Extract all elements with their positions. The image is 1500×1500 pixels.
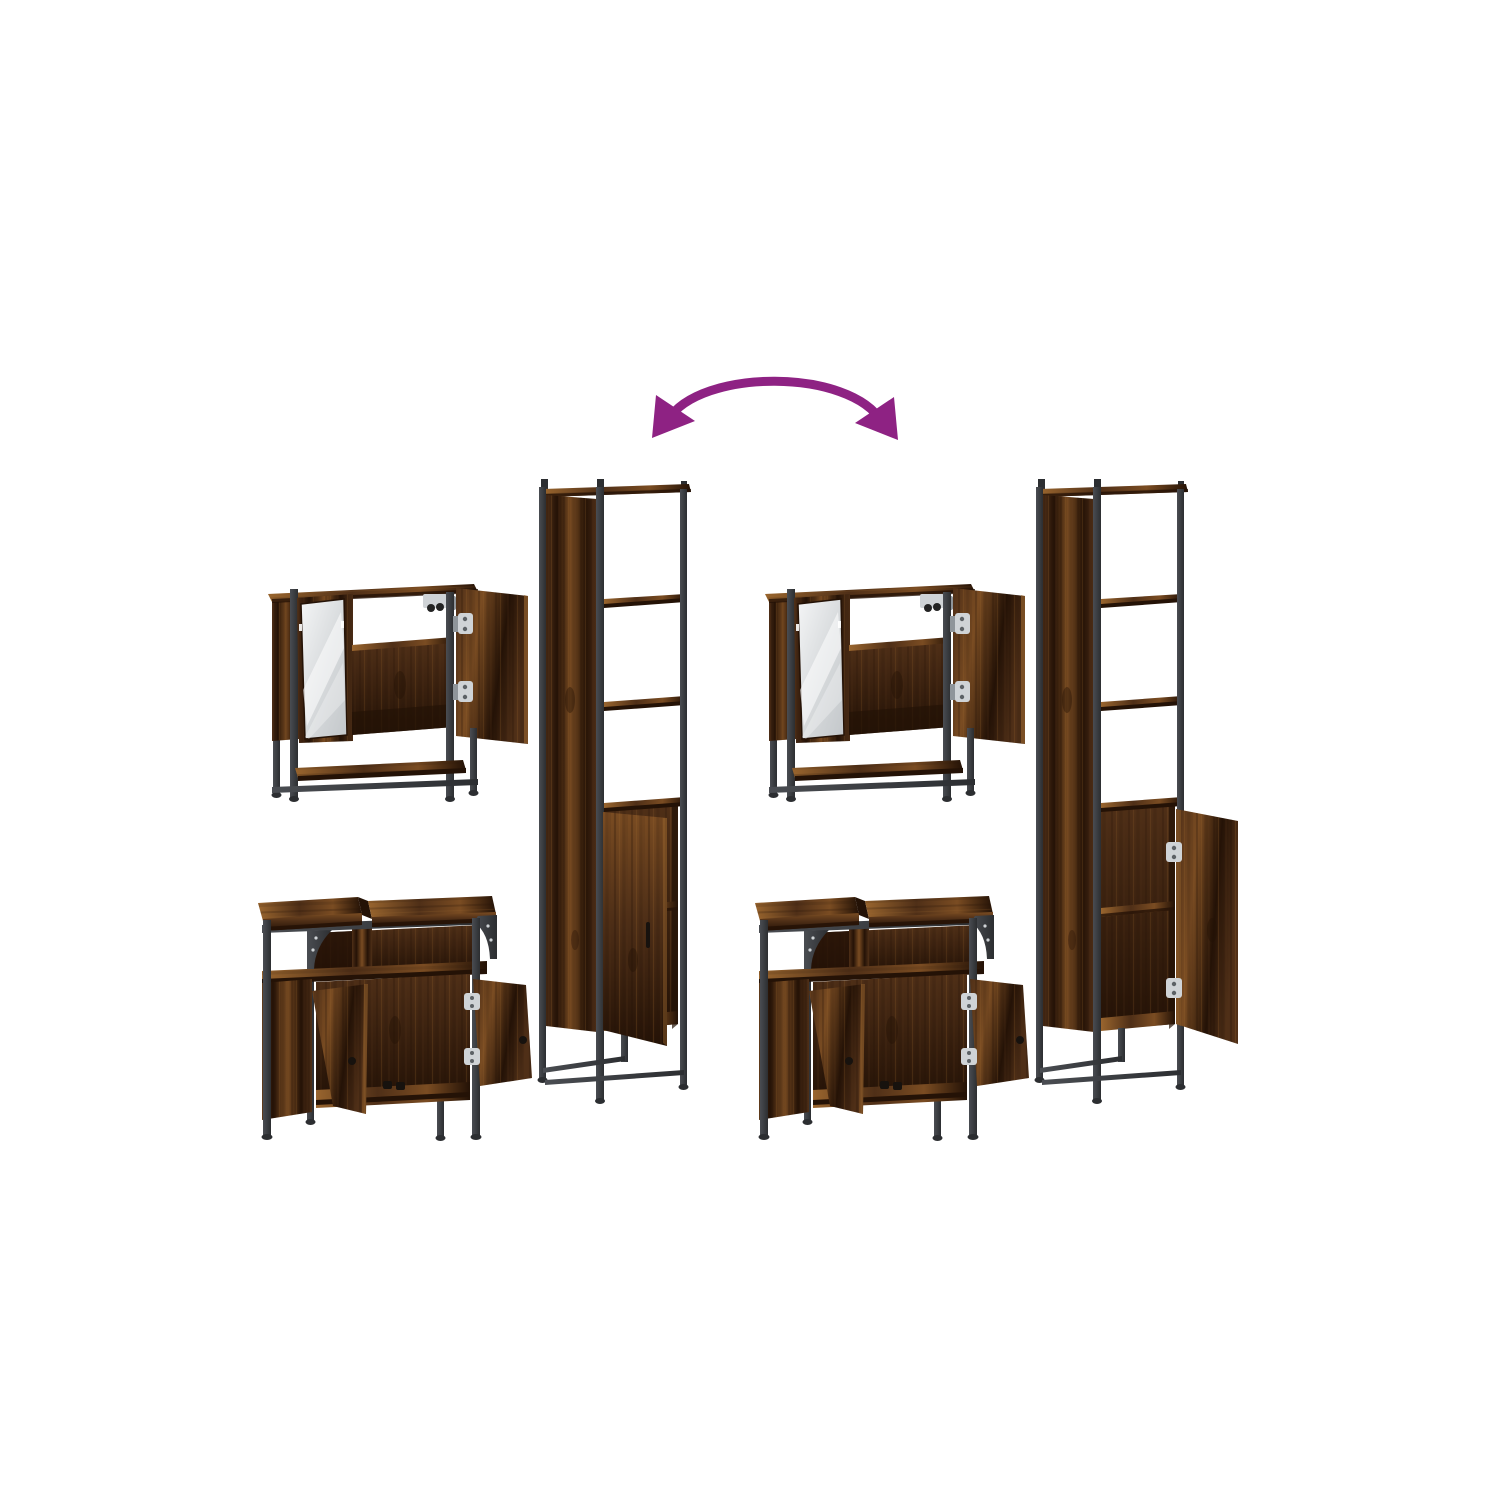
tall-cabinet-door-ajar [603,812,667,1046]
tall-cabinet-door-open [1166,809,1238,1044]
swap-arrow [652,381,898,440]
tall-cabinet [1035,479,1189,1104]
sink-vanity [755,896,1029,1141]
furniture-set-right [755,479,1238,1141]
product-image-canvas [0,0,1500,1500]
furniture-product-illustration [0,0,1500,1500]
swap-arrow-arc [668,381,882,422]
furniture-set-left [258,479,691,1141]
sink-vanity [258,896,532,1141]
mirror-cabinet [268,584,528,802]
mirror-cabinet [765,584,1025,802]
